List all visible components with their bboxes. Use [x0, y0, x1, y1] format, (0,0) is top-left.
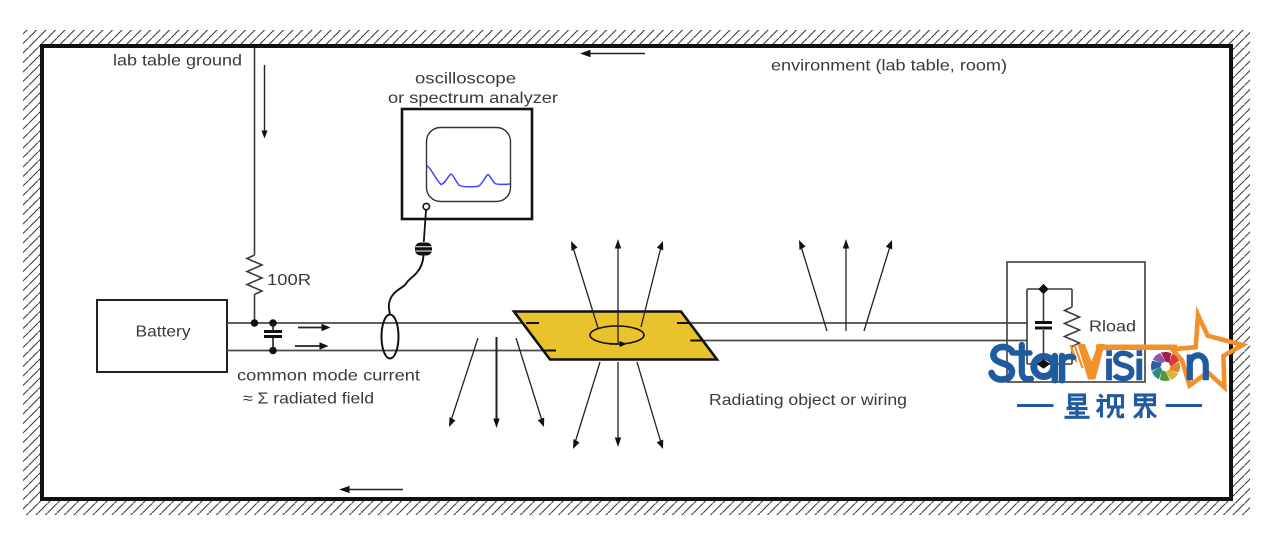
svg-text:≈ Σ radiated field: ≈ Σ radiated field [243, 391, 374, 408]
svg-text:environment (lab table, room): environment (lab table, room) [771, 58, 1007, 75]
svg-text:common mode current: common mode current [237, 368, 421, 385]
svg-text:Battery: Battery [136, 324, 191, 341]
svg-text:oscilloscope: oscilloscope [415, 71, 516, 88]
svg-text:Radiating object or wiring: Radiating object or wiring [709, 392, 907, 409]
svg-text:lab table ground: lab table ground [113, 53, 242, 70]
svg-text:or spectrum analyzer: or spectrum analyzer [388, 90, 559, 107]
svg-text:100R: 100R [267, 272, 311, 289]
svg-text:Rload: Rload [1089, 319, 1136, 336]
